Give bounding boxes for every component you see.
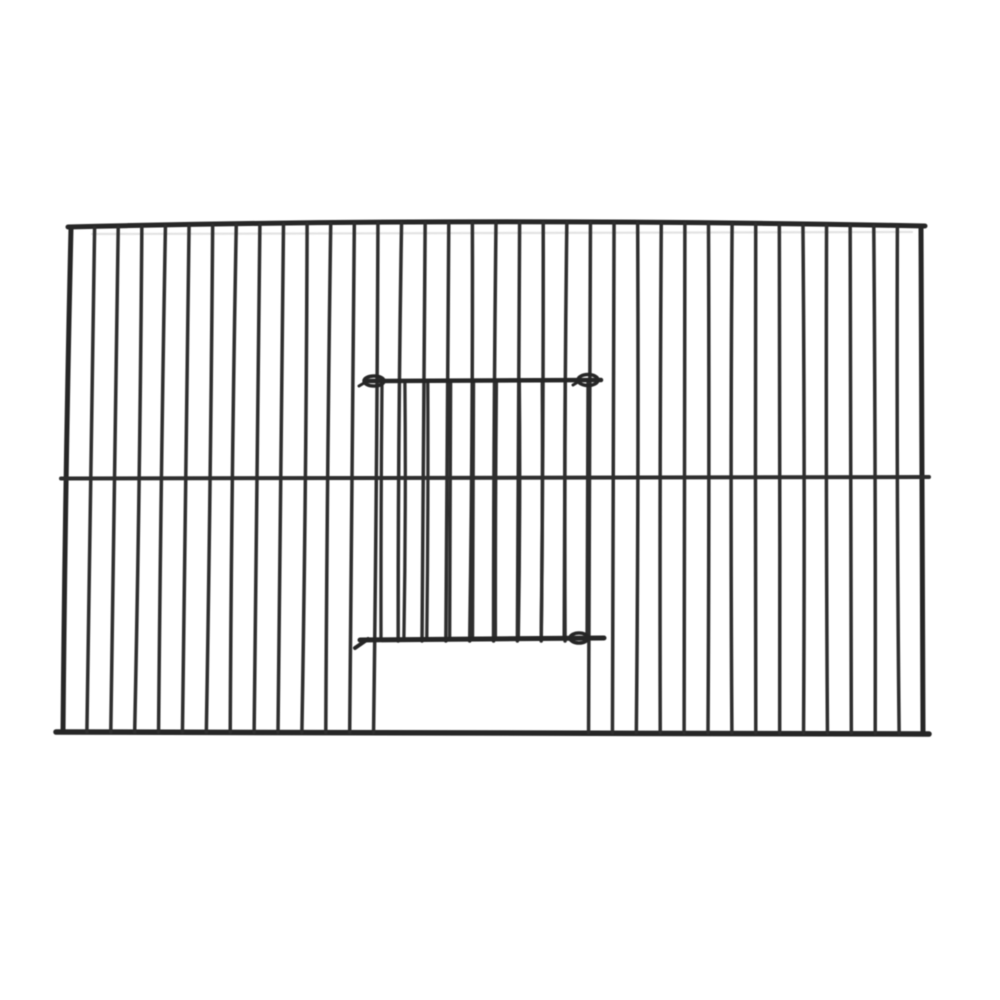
door-bar [587,381,588,639]
door-bar [450,381,451,639]
product-photo-cage-front [0,0,1000,1000]
cage-bar [850,226,851,733]
door-top-wire [365,380,601,381]
door-bar [518,381,519,639]
door-bar [495,381,496,639]
cage-bar [874,226,876,733]
cage-frame-bottom-rail [56,732,929,734]
cage-bar [422,223,425,641]
door-hook-tail [573,382,578,385]
photo-ghost-line [92,232,912,234]
door-hook-tail [359,383,364,386]
door-bar [564,381,565,639]
door-bar [473,381,474,639]
cage-frame-right-wire [921,227,923,733]
cage-bar [398,223,401,641]
door-bar [427,381,428,639]
cage-bar [897,227,899,733]
door-bottom-wire [360,638,604,640]
door-bar [381,381,382,639]
door-bar [541,381,542,639]
door-bar [404,381,405,639]
cage-front-drawing [0,0,1000,1000]
